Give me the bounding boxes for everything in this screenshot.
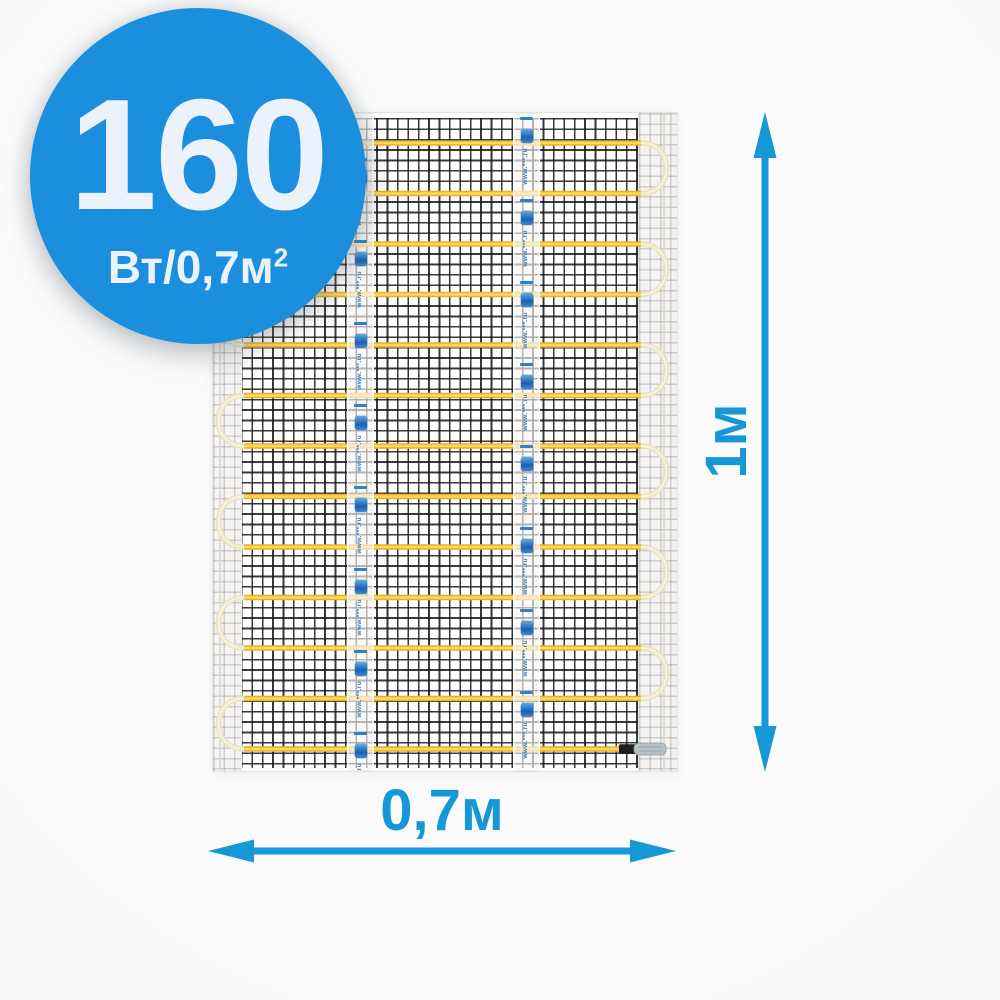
tape-dash-mark (520, 691, 533, 694)
brand-tape-url: www.***.ru (357, 763, 364, 772)
tape-dash-mark (520, 527, 533, 530)
cable-end-connector (619, 743, 666, 755)
brand-tape-print-unit: www.***.ru (513, 523, 540, 605)
brand-tape-print-unit: www.***.ru (513, 441, 540, 523)
brand-tape-url: www.***.ru (357, 599, 364, 636)
tape-dash-mark (520, 363, 533, 366)
brand-logo-icon (521, 539, 533, 553)
brand-tape-url: www.***.ru (523, 148, 530, 185)
brand-tape-print-unit: www.***.ru (347, 318, 374, 400)
brand-tape-url: www.***.ru (523, 312, 530, 349)
brand-tape-url: www.***.ru (523, 722, 530, 759)
tape-dash-mark (354, 486, 367, 489)
brand-logo-icon (355, 498, 367, 512)
brand-tape-url: www.***.ru (357, 517, 364, 554)
brand-logo-icon (521, 293, 533, 307)
tape-dash-mark (354, 568, 367, 571)
tape-dash-mark (520, 609, 533, 612)
height-dimension-label: 1м (698, 366, 756, 516)
tape-dash-mark (354, 240, 367, 243)
tape-dash-mark (520, 445, 533, 448)
brand-logo-icon (521, 375, 533, 389)
brand-logo-icon (355, 334, 367, 348)
brand-tape-url: www.***.ru (357, 353, 364, 390)
power-value: 160 (69, 84, 327, 226)
brand-logo-icon (355, 416, 367, 430)
brand-tape-strip: www.***.ruwww.***.ruwww.***.ruwww.***.ru… (513, 113, 540, 771)
brand-tape-print-unit: www.***.ru (513, 113, 540, 195)
brand-tape-print-unit: www.***.ru (513, 359, 540, 441)
tape-dash-mark (520, 281, 533, 284)
tape-dash-mark (354, 322, 367, 325)
power-badge: 160 Вт/0,7м2 (30, 8, 366, 344)
tape-dash-mark (354, 732, 367, 735)
brand-tape-print-unit: www.***.ru (347, 482, 374, 564)
brand-tape-url: www.***.ru (523, 394, 530, 431)
brand-tape-print-unit: www.***.ru (513, 605, 540, 687)
brand-tape-print-unit: www.***.ru (347, 728, 374, 771)
power-unit-text: Вт/0,7м (108, 241, 274, 293)
tape-dash-mark (354, 404, 367, 407)
brand-logo-icon (355, 662, 367, 676)
tape-dash-mark (520, 117, 533, 120)
brand-logo-icon (355, 744, 367, 758)
brand-logo-icon (355, 252, 367, 266)
brand-tape-print-unit: www.***.ru (347, 564, 374, 646)
brand-tape-url: www.***.ru (357, 271, 364, 308)
brand-tape-print-unit: www.***.ru (513, 195, 540, 277)
brand-tape-url: www.***.ru (523, 640, 530, 677)
brand-tape-url: www.***.ru (523, 558, 530, 595)
brand-tape-print-unit: www.***.ru (347, 236, 374, 318)
brand-logo-icon (521, 703, 533, 717)
brand-logo-icon (521, 457, 533, 471)
tape-dash-mark (520, 199, 533, 202)
brand-tape-print-unit: www.***.ru (347, 400, 374, 482)
brand-tape-print-unit: www.***.ru (513, 687, 540, 769)
brand-tape-url: www.***.ru (357, 435, 364, 472)
brand-tape-print-unit: www.***.ru (513, 277, 540, 359)
brand-tape-url: www.***.ru (357, 681, 364, 718)
brand-logo-icon (355, 580, 367, 594)
tape-dash-mark (354, 650, 367, 653)
width-dimension-label: 0,7м (240, 782, 644, 840)
brand-tape-print-unit: www.***.ru (347, 646, 374, 728)
brand-logo-icon (521, 129, 533, 143)
power-unit-superscript: 2 (274, 243, 288, 273)
brand-tape-url: www.***.ru (523, 230, 530, 267)
power-unit: Вт/0,7м2 (108, 240, 288, 294)
brand-logo-icon (521, 211, 533, 225)
brand-logo-icon (521, 621, 533, 635)
brand-tape-url: www.***.ru (523, 476, 530, 513)
